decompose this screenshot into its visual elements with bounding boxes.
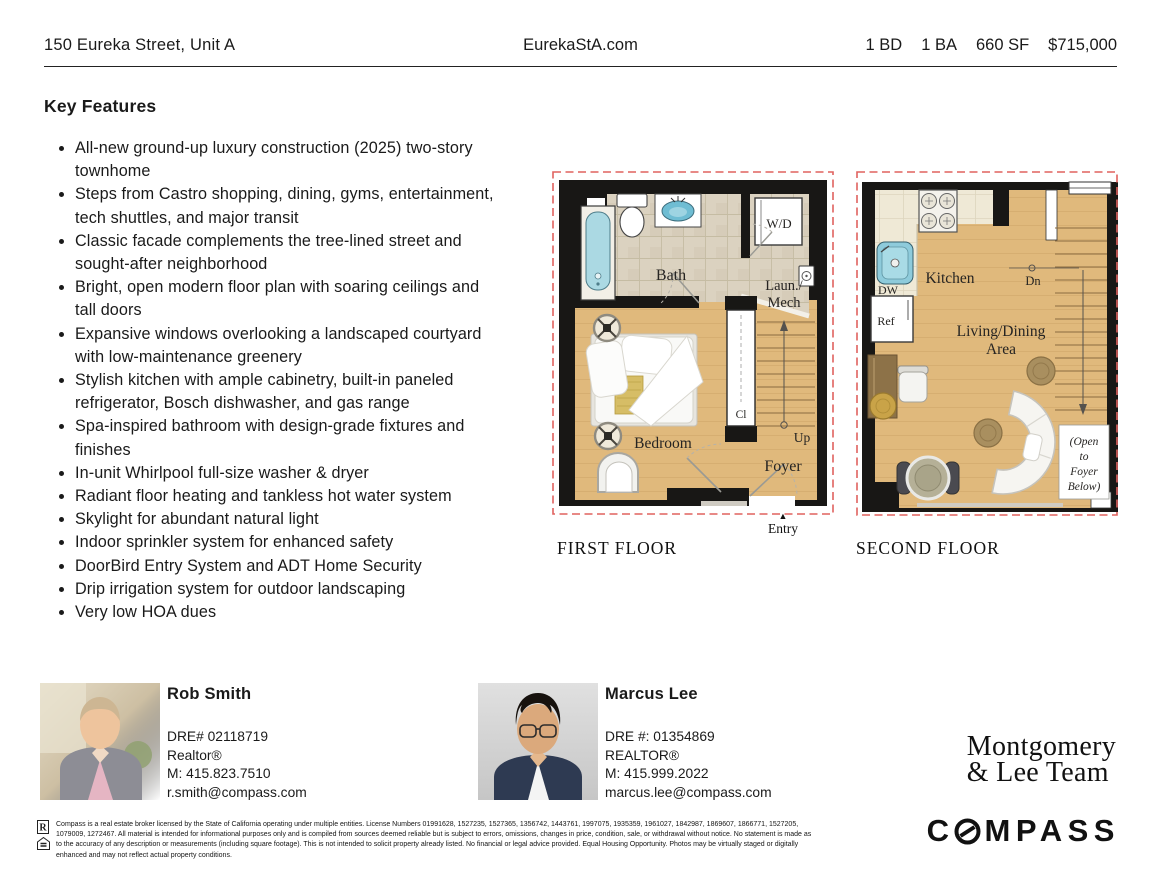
feature-item: Skylight for abundant natural light: [75, 508, 504, 531]
entry-opening: [749, 496, 795, 506]
agent-email[interactable]: r.smith@compass.com: [167, 784, 307, 803]
feature-item: Very low HOA dues: [75, 601, 504, 624]
compass-o-icon: [954, 818, 981, 845]
agent-phone: M: 415.999.2022: [605, 765, 772, 784]
agent-photo: [40, 683, 160, 800]
property-stats: 1 BD 1 BA 660 SF $715,000: [866, 36, 1118, 55]
open-foyer-label-1: (Open: [1070, 436, 1099, 448]
agent-card-rob-smith: Rob Smith DRE# 02118719 Realtor® M: 415.…: [40, 683, 307, 802]
feature-item: Expansive windows overlooking a landscap…: [75, 323, 504, 369]
laundry-label-1: Laun./: [765, 278, 803, 294]
disclaimer-block: R Compass is a real estate broker licens…: [36, 820, 836, 861]
ceiling-light-icon: [595, 423, 621, 449]
feature-item: Indoor sprinkler system for enhanced saf…: [75, 531, 504, 554]
gold-stool: [870, 393, 896, 419]
stat-square-feet: 660 SF: [976, 36, 1029, 55]
feature-item: Bright, open modern floor plan with soar…: [75, 276, 504, 322]
property-address: 150 Eureka Street, Unit A: [44, 36, 235, 55]
feature-item: Spa-inspired bathroom with design-grade …: [75, 415, 504, 461]
agent-card-marcus-lee: Marcus Lee DRE #: 01354869 REALTOR® M: 4…: [478, 683, 772, 802]
desk-chair: [898, 366, 928, 402]
stat-bedrooms: 1 BD: [866, 36, 903, 55]
feature-item: Drip irrigation system for outdoor lands…: [75, 578, 504, 601]
agent-name: Rob Smith: [167, 685, 307, 704]
open-foyer-label-4: Below): [1068, 481, 1101, 493]
agent-photo: [478, 683, 598, 800]
team-name-line-2: & Lee Team: [967, 760, 1116, 786]
svg-text:R: R: [39, 823, 47, 834]
agent-title: Realtor®: [167, 747, 307, 766]
bath-label: Bath: [656, 267, 686, 284]
open-foyer-label-2: to: [1080, 451, 1089, 463]
dining-set: [897, 457, 959, 499]
feature-item: Steps from Castro shopping, dining, gyms…: [75, 183, 504, 229]
agent-dre: DRE #: 01354869: [605, 728, 772, 747]
stat-bathrooms: 1 BA: [921, 36, 957, 55]
entry-arrow-icon: ▲: [757, 511, 809, 521]
feature-item: Radiant floor heating and tankless hot w…: [75, 485, 504, 508]
ceiling-light-icon: [594, 315, 620, 341]
feature-item: DoorBird Entry System and ADT Home Secur…: [75, 555, 504, 578]
agent-email[interactable]: marcus.lee@compass.com: [605, 784, 772, 803]
compass-logo-rest: MPASS: [985, 813, 1120, 849]
living-dining-label-1: Living/Dining: [957, 323, 1046, 340]
first-floor-caption: FIRST FLOOR: [557, 538, 677, 559]
equal-housing-icon: [37, 837, 50, 850]
team-logo: Montgomery & Lee Team: [967, 734, 1116, 786]
realtor-icon: R: [37, 820, 49, 834]
toilet-icon: [617, 194, 647, 237]
window-icon: [1069, 182, 1111, 194]
property-website-link[interactable]: EurekaStA.com: [523, 36, 638, 55]
feature-item: Stylish kitchen with ample cabinetry, bu…: [75, 369, 504, 415]
feature-item: All-new ground-up luxury construction (2…: [75, 137, 504, 183]
agent-title: REALTOR®: [605, 747, 772, 766]
flyer-page: 150 Eureka Street, Unit A EurekaStA.com …: [0, 0, 1161, 877]
bed: [585, 334, 703, 426]
laundry-label-2: Mech: [767, 295, 801, 311]
stat-price: $715,000: [1048, 36, 1117, 55]
agent-phone: M: 415.823.7510: [167, 765, 307, 784]
key-features-section: Key Features All-new ground-up luxury co…: [44, 96, 504, 624]
compass-logo-c: C: [927, 813, 955, 849]
entry-sill: [701, 501, 747, 506]
up-label: Up: [794, 430, 811, 445]
stove-icon: [919, 190, 957, 232]
header-divider: [44, 66, 1117, 67]
deck-sill: [917, 503, 1063, 507]
dw-label: DW: [878, 283, 899, 297]
living-dining-label-2: Area: [986, 341, 1016, 358]
kitchen-sink-icon: [877, 242, 913, 284]
bathtub-icon: [581, 198, 615, 300]
second-floor-plan: Kitchen DW Ref Dn Living/Dining Area (Op…: [855, 170, 1122, 521]
side-table: [1027, 357, 1055, 385]
armchair: [598, 453, 638, 492]
side-table: [974, 419, 1002, 447]
stair-wall-gap: [1046, 190, 1057, 240]
key-features-list: All-new ground-up luxury construction (2…: [44, 137, 504, 624]
agent-dre: DRE# 02118719: [167, 728, 307, 747]
agent-name: Marcus Lee: [605, 685, 772, 704]
dn-label: Dn: [1025, 274, 1041, 288]
foyer-label: Foyer: [764, 458, 802, 475]
wd-label: W/D: [766, 216, 791, 231]
compass-logo: C MPASS: [927, 813, 1120, 849]
key-features-title: Key Features: [44, 96, 504, 117]
closet-label: Cl: [736, 409, 747, 421]
open-foyer-label-3: Foyer: [1069, 466, 1098, 478]
kitchen-wall-chunk: [993, 190, 1009, 226]
second-floor-caption: SECOND FLOOR: [856, 538, 1000, 559]
ref-label: Ref: [877, 314, 894, 328]
kitchen-label: Kitchen: [925, 270, 974, 287]
first-floor-plan: Bath W/D Laun./ Mech Cl Up Foyer Bedroom: [551, 170, 835, 516]
bath-sink-icon: [655, 194, 701, 227]
entry-marker: ▲ Entry: [757, 511, 809, 536]
feature-item: Classic facade complements the tree-line…: [75, 230, 504, 276]
feature-item: In-unit Whirlpool full-size washer & dry…: [75, 462, 504, 485]
legal-disclaimer-text: Compass is a real estate broker licensed…: [56, 820, 816, 861]
wall-bump: [875, 482, 899, 508]
bedroom-label: Bedroom: [634, 435, 692, 452]
entry-label: Entry: [757, 521, 809, 536]
